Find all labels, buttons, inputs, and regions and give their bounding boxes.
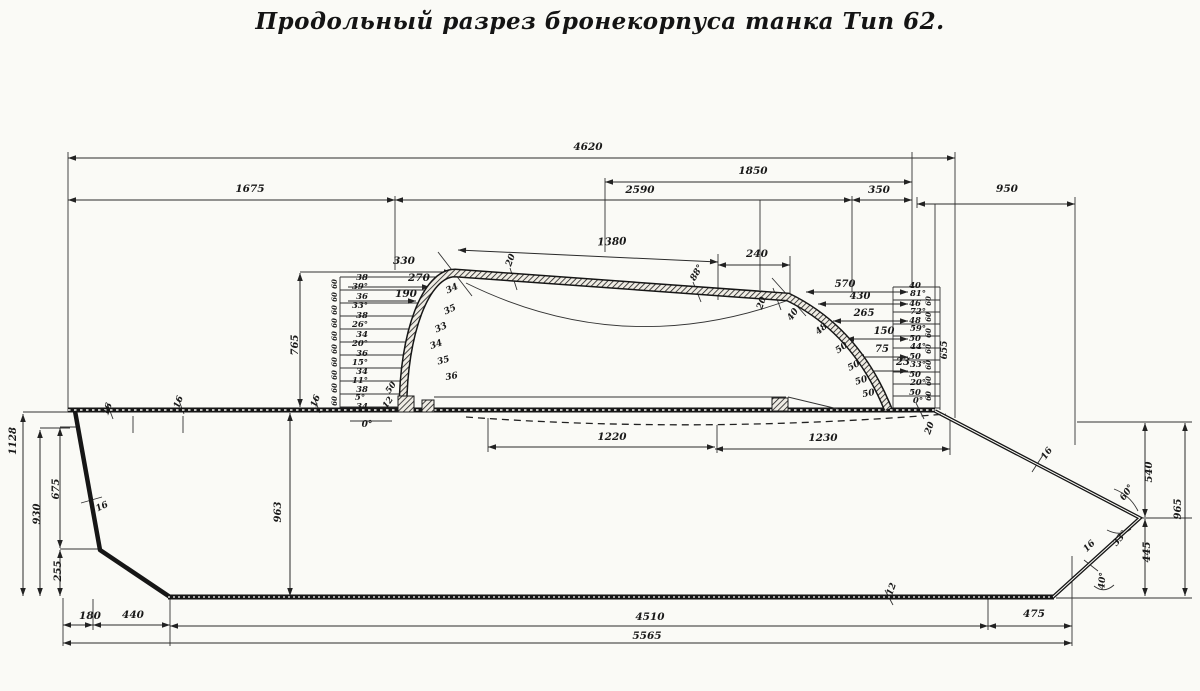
dim-label: 60: [924, 328, 933, 338]
dim-label: 963: [273, 502, 284, 523]
dim-label: 60: [330, 292, 339, 302]
dim-label: 60: [924, 312, 933, 322]
dim-label: 4620: [573, 141, 603, 153]
dim-label: 60: [330, 344, 339, 354]
dim-label: 75: [875, 344, 889, 355]
dim-label: 60: [330, 370, 339, 380]
dim-label: 150: [874, 326, 895, 337]
dim-label: 1230: [808, 432, 838, 444]
dim-label: 0°: [362, 420, 373, 430]
dim-label: 16: [94, 500, 110, 515]
dim-label: 240: [745, 248, 769, 260]
dim-label: 60: [330, 279, 339, 289]
blueprint-canvas: 4620167525901850350950138024033027019020…: [0, 0, 1200, 691]
dim-label: 4510: [635, 611, 665, 623]
dim-label: 440: [122, 609, 145, 621]
dim-label: 950: [996, 183, 1019, 195]
dim-label: 675: [51, 479, 62, 500]
dim-label: 1220: [597, 431, 627, 443]
dim-label: 60: [924, 376, 933, 386]
dim-label: 350: [868, 184, 891, 196]
dim-label: 16: [309, 393, 323, 409]
dim-label: 60: [330, 318, 339, 328]
dim-label: 50: [384, 380, 399, 395]
dim-label: 445: [1142, 542, 1153, 563]
dim-labels-layer: 4620167525901850350950138024033027019020…: [8, 141, 1184, 642]
ring-block-left: [398, 396, 414, 412]
dimension-lines: [23, 158, 1185, 643]
dim-label: 330: [393, 255, 416, 267]
dim-label: 60: [924, 360, 933, 370]
dim-label: 60: [330, 357, 339, 367]
dim-label: 60: [330, 305, 339, 315]
dim-label: 88°: [689, 263, 706, 283]
dim-label: 16: [101, 401, 115, 417]
dim-label: 1128: [8, 427, 19, 455]
dim-label: 190: [395, 288, 418, 300]
dim-label: 26°: [351, 320, 368, 330]
dim-label: 270: [407, 272, 431, 284]
dim-label: 655: [940, 341, 950, 360]
dim-label: 60: [330, 396, 339, 406]
dim-label: 255: [53, 561, 64, 583]
dim-label: 35: [442, 303, 458, 317]
dim-label: 33°: [352, 301, 368, 311]
dim-label: 34: [429, 338, 444, 352]
dim-label: 180: [79, 610, 102, 622]
dim-label: 430: [850, 291, 871, 302]
dim-label: 60: [924, 391, 933, 401]
dim-label: 765: [290, 335, 301, 356]
ring-block-right: [772, 398, 788, 411]
dim-label: 570: [835, 279, 856, 290]
dim-label: 965: [1173, 499, 1184, 520]
dim-label: 16: [1040, 445, 1056, 462]
ring-block-left-2: [422, 400, 434, 412]
dim-label: 36: [445, 371, 460, 383]
dim-label: 39°: [352, 282, 368, 292]
dim-label: 930: [32, 504, 43, 525]
dim-label: 60: [924, 296, 933, 306]
dim-label: 34: [444, 282, 460, 296]
dim-label: 35: [436, 355, 451, 368]
dim-label: 5565: [632, 630, 661, 642]
dim-label: 60: [330, 383, 339, 393]
dim-label: 2590: [624, 184, 655, 196]
dim-label: 540: [1144, 462, 1155, 483]
dim-label: 265: [853, 308, 875, 319]
dim-label: 20: [923, 420, 937, 437]
dim-label: 60: [924, 344, 933, 354]
dim-label: 60°: [1118, 483, 1136, 503]
extension-lines: [23, 152, 1192, 646]
dim-label: 1380: [597, 235, 627, 248]
dim-label: 475: [1023, 608, 1045, 620]
dim-label: 33: [433, 321, 449, 335]
dim-label: 16: [1082, 538, 1098, 554]
dim-label: 0°: [913, 396, 923, 406]
dim-label: 60: [330, 331, 339, 341]
dim-label: 20°: [351, 339, 368, 349]
floor-dashed-line: [466, 414, 946, 425]
dim-label: 20: [504, 252, 518, 269]
dim-label: 1850: [738, 165, 768, 177]
dim-label: 23: [895, 357, 910, 368]
dim-label: 34: [356, 402, 368, 412]
dim-label: 40°: [1097, 572, 1108, 590]
dim-label: 1675: [235, 183, 264, 195]
